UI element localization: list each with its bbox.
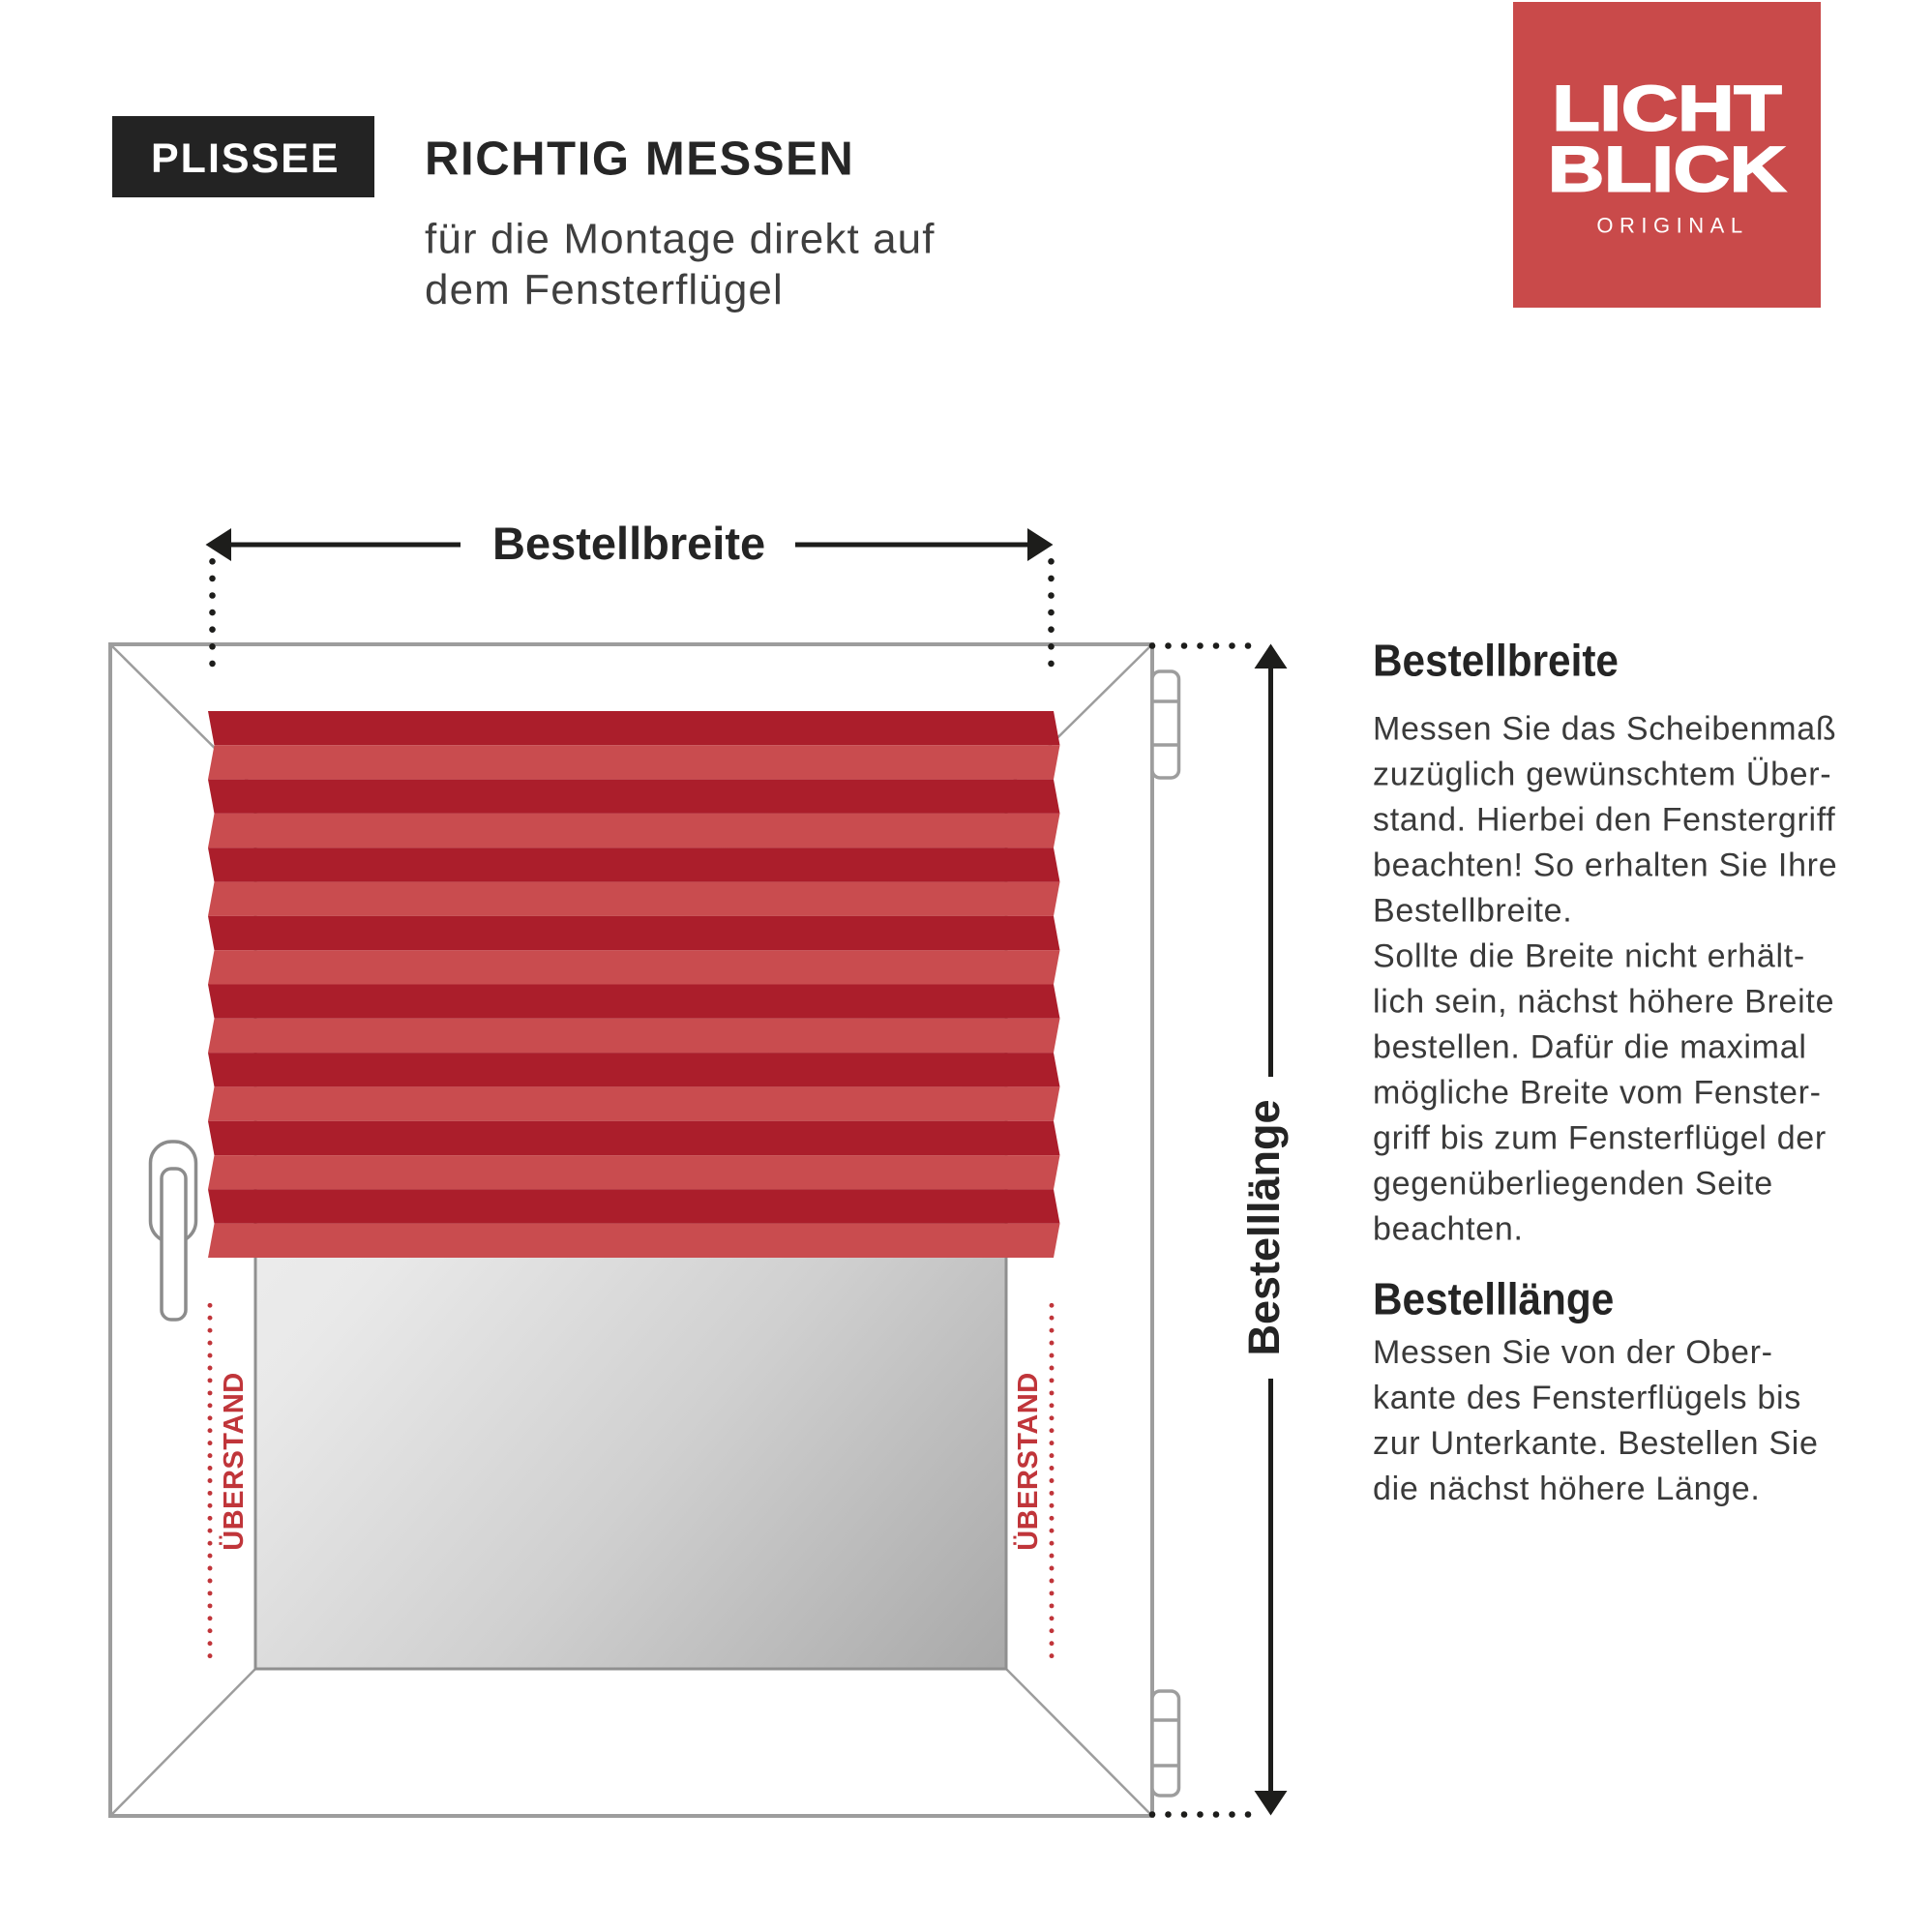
svg-text:bestellen. Dafür die maximal: bestellen. Dafür die maximal <box>1373 1028 1807 1065</box>
svg-text:kante des Fensterflügels bis: kante des Fensterflügels bis <box>1373 1380 1801 1416</box>
svg-text:Messen Sie das Scheibenmaß: Messen Sie das Scheibenmaß <box>1373 710 1836 747</box>
svg-text:die nächst höhere Länge.: die nächst höhere Länge. <box>1373 1471 1761 1507</box>
svg-text:Bestelllänge: Bestelllänge <box>1239 1099 1289 1355</box>
svg-text:zuzüglich gewünschtem Über-: zuzüglich gewünschtem Über- <box>1373 756 1831 792</box>
svg-text:BLICK: BLICK <box>1548 133 1786 204</box>
svg-text:lich sein, nächst höhere Breit: lich sein, nächst höhere Breite <box>1373 983 1834 1020</box>
svg-text:griff bis zum Fensterflügel de: griff bis zum Fensterflügel der <box>1373 1119 1827 1156</box>
svg-text:Messen Sie von der Ober-: Messen Sie von der Ober- <box>1373 1334 1773 1371</box>
svg-text:ORIGINAL: ORIGINAL <box>1596 214 1748 238</box>
svg-text:gegenüberliegenden Seite: gegenüberliegenden Seite <box>1373 1165 1773 1202</box>
svg-text:Sollte die Breite nicht erhält: Sollte die Breite nicht erhält- <box>1373 937 1805 974</box>
svg-text:mögliche Breite vom Fenster-: mögliche Breite vom Fenster- <box>1373 1074 1822 1111</box>
svg-text:Bestellbreite.: Bestellbreite. <box>1373 892 1572 929</box>
svg-text:Bestellbreite: Bestellbreite <box>1373 637 1619 686</box>
svg-text:ÜBERSTAND: ÜBERSTAND <box>218 1372 250 1550</box>
svg-text:ÜBERSTAND: ÜBERSTAND <box>1012 1372 1044 1550</box>
svg-text:für die Montage direkt auf: für die Montage direkt auf <box>425 215 936 262</box>
svg-text:beachten! So erhalten Sie Ihre: beachten! So erhalten Sie Ihre <box>1373 847 1837 883</box>
svg-text:dem Fensterflügel: dem Fensterflügel <box>425 266 784 313</box>
svg-text:beachten.: beachten. <box>1373 1210 1524 1247</box>
svg-text:Bestelllänge: Bestelllänge <box>1373 1275 1614 1324</box>
svg-text:PLISSEE: PLISSEE <box>151 135 341 182</box>
svg-text:Bestellbreite: Bestellbreite <box>492 518 765 569</box>
svg-text:zur Unterkante. Bestellen Sie: zur Unterkante. Bestellen Sie <box>1373 1425 1819 1462</box>
svg-text:RICHTIG MESSEN: RICHTIG MESSEN <box>425 134 854 186</box>
svg-text:stand. Hierbei den Fenstergrif: stand. Hierbei den Fenstergriff <box>1373 801 1835 838</box>
